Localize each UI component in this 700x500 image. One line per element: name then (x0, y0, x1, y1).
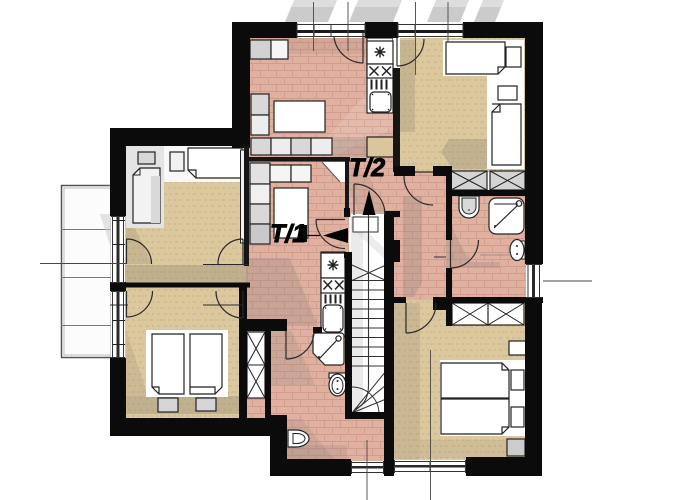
svg-text:T/2: T/2 (349, 154, 385, 182)
svg-text:T/1: T/1 (270, 220, 306, 248)
